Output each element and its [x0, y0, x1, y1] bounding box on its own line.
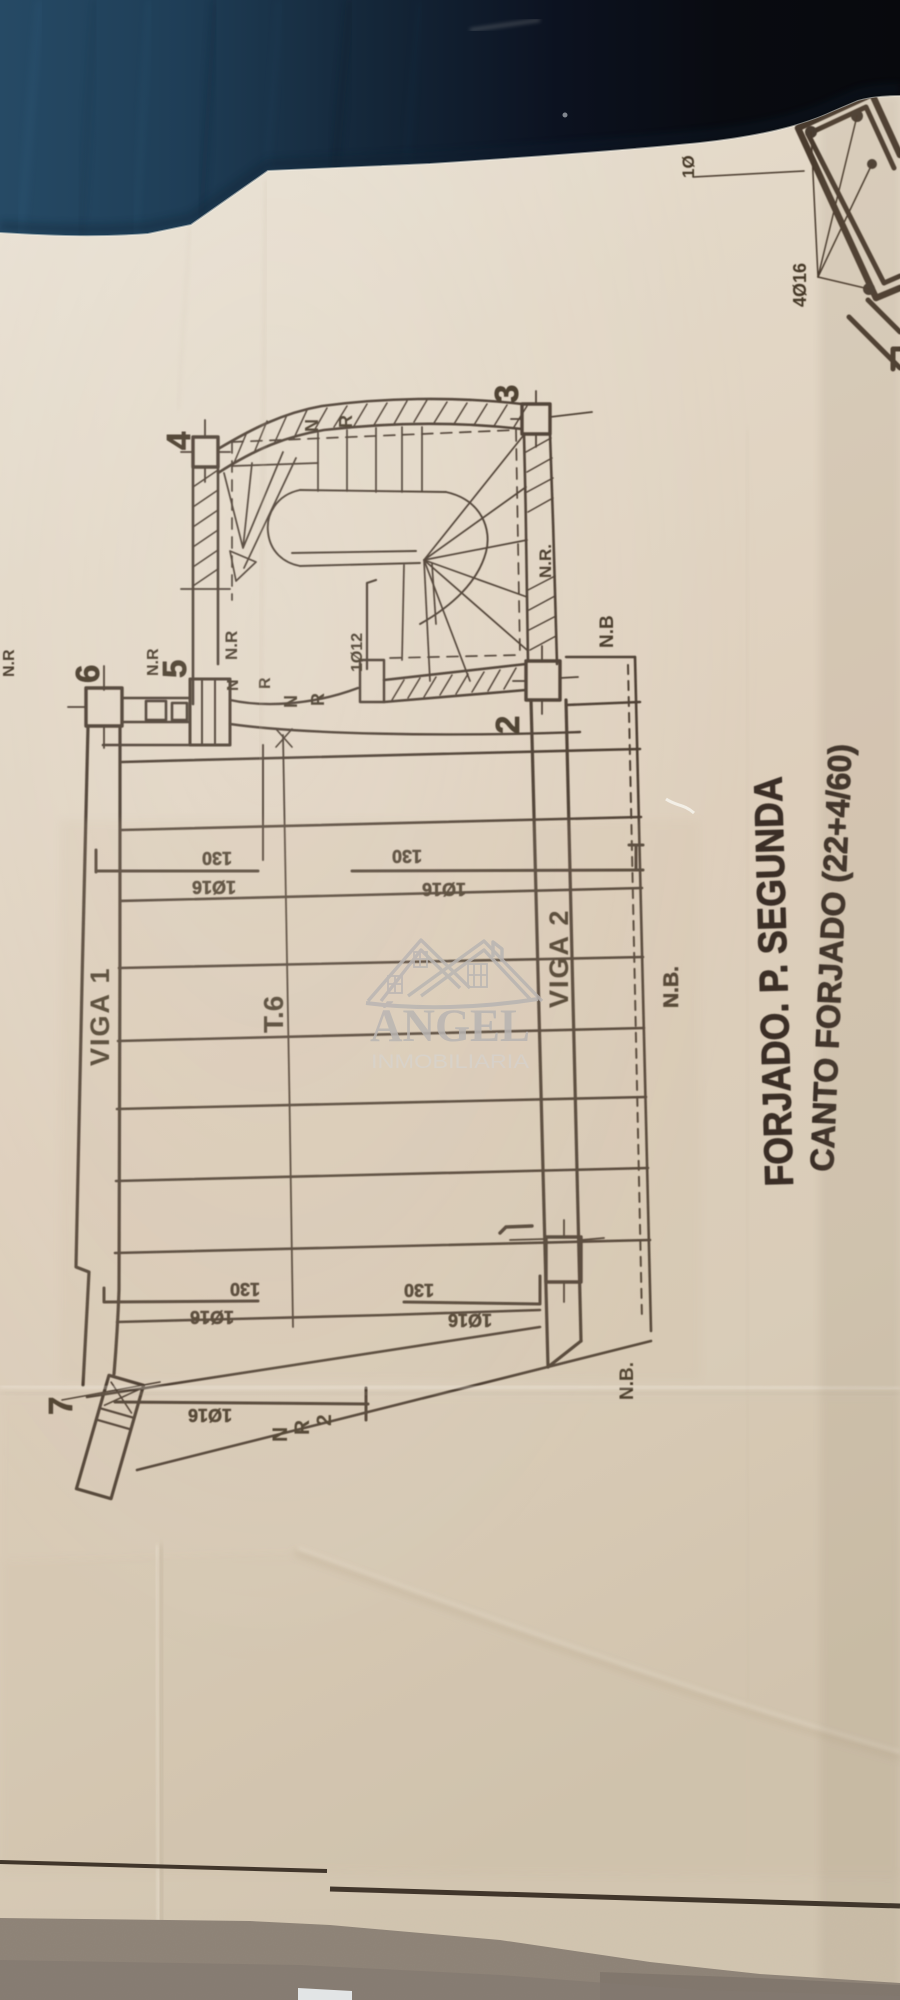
svg-text:2: 2 — [489, 716, 526, 734]
svg-text:4: 4 — [160, 431, 197, 450]
svg-text:N: N — [281, 695, 301, 708]
svg-text:3: 3 — [488, 385, 525, 403]
svg-text:N.B: N.B — [597, 615, 618, 648]
svg-text:1Ø: 1Ø — [679, 155, 698, 178]
svg-text:N: N — [302, 419, 322, 432]
svg-text:N.R.: N.R. — [536, 544, 555, 578]
svg-text:4Ø16: 4Ø16 — [790, 263, 810, 307]
svg-text:N.R: N.R — [222, 631, 241, 660]
svg-text:6: 6 — [69, 665, 106, 683]
svg-text:R: R — [336, 415, 356, 428]
svg-text:N: N — [225, 679, 242, 691]
svg-text:N.R: N.R — [1, 649, 18, 677]
svg-text:R: R — [308, 693, 328, 706]
svg-text:5: 5 — [156, 660, 193, 678]
svg-text:1Ø12: 1Ø12 — [349, 633, 366, 672]
